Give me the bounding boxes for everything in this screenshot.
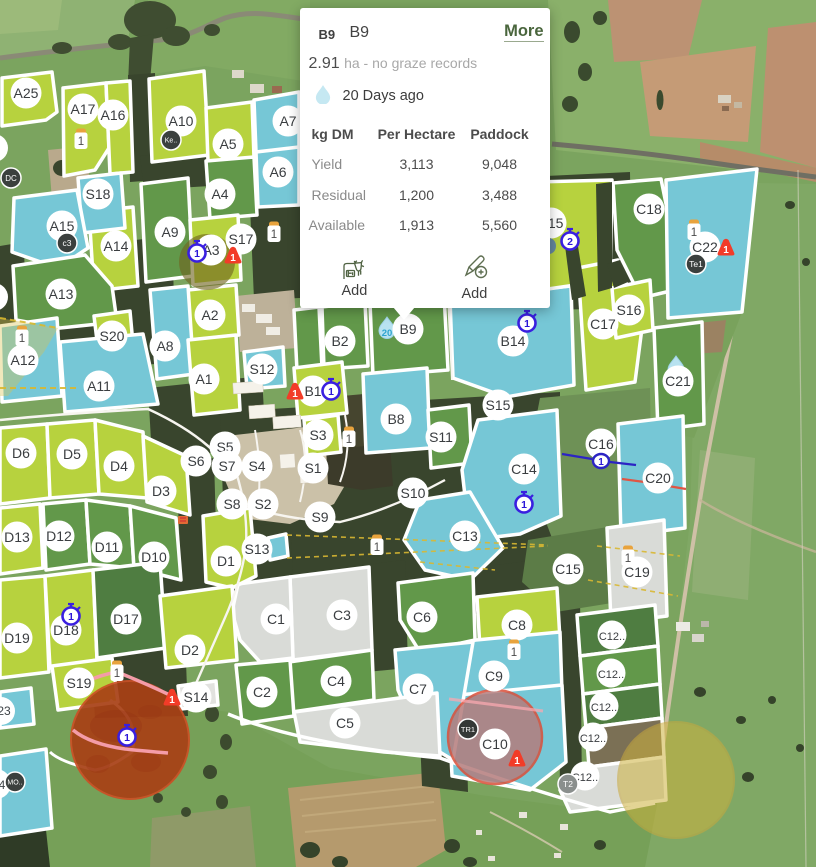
svg-text:A15: A15 [50,218,75,234]
svg-text:S12: S12 [250,361,275,377]
svg-text:1: 1 [723,245,729,256]
svg-text:T2: T2 [563,779,573,789]
svg-text:A13: A13 [49,286,74,302]
svg-text:D17: D17 [113,611,139,627]
svg-text:S20: S20 [100,328,125,344]
svg-text:Ke..: Ke.. [165,138,178,145]
svg-text:B1: B1 [304,383,321,399]
svg-text:C5: C5 [336,715,354,731]
svg-text:D11: D11 [95,539,120,555]
svg-text:S15: S15 [486,397,511,413]
svg-text:A25: A25 [14,85,39,101]
svg-text:1: 1 [524,318,530,330]
svg-text:1: 1 [230,253,236,264]
svg-text:S9: S9 [311,509,328,525]
svg-text:S1: S1 [304,460,321,476]
svg-text:S4: S4 [248,458,265,474]
svg-text:D12: D12 [46,528,72,544]
svg-text:C21: C21 [665,373,691,389]
svg-text:1: 1 [68,611,74,623]
svg-text:C4: C4 [327,673,345,689]
svg-text:C12..: C12.. [591,702,617,714]
svg-text:1: 1 [374,542,380,554]
svg-text:A8: A8 [156,338,173,354]
svg-text:1: 1 [346,434,352,446]
svg-text:A16: A16 [101,107,126,123]
svg-text:C9: C9 [485,668,503,684]
svg-text:S19: S19 [67,675,92,691]
svg-text:C12..: C12.. [598,669,624,681]
svg-text:A6: A6 [269,164,286,180]
svg-text:S14: S14 [184,689,209,705]
svg-text:D6: D6 [12,445,30,461]
svg-text:1: 1 [292,389,298,400]
svg-text:20: 20 [382,328,393,339]
svg-text:Te1: Te1 [689,259,703,269]
svg-text:S3: S3 [309,427,326,443]
svg-text:1: 1 [514,756,520,767]
svg-text:1: 1 [169,695,175,706]
svg-text:1: 1 [691,227,697,239]
svg-text:D3: D3 [152,483,170,499]
svg-text:1: 1 [19,333,25,345]
svg-text:S6: S6 [187,453,204,469]
svg-text:2: 2 [567,236,573,248]
svg-text:D1: D1 [217,553,235,569]
svg-text:B14: B14 [501,333,526,349]
svg-text:c3: c3 [63,238,72,248]
svg-text:C6: C6 [413,609,431,625]
svg-text:C14: C14 [511,461,537,477]
svg-text:C8: C8 [508,617,526,633]
svg-text:S18: S18 [86,186,111,202]
svg-text:B8: B8 [387,411,404,427]
svg-text:S2: S2 [254,496,271,512]
svg-text:C1: C1 [267,611,285,627]
svg-text:B9: B9 [399,321,416,337]
svg-text:C17: C17 [590,316,616,332]
svg-text:S7: S7 [218,458,235,474]
svg-text:1: 1 [271,229,277,241]
svg-text:1: 1 [78,136,84,148]
svg-text:A2: A2 [201,307,218,323]
svg-text:S16: S16 [617,302,642,318]
svg-text:A7: A7 [279,113,296,129]
svg-text:A1: A1 [195,371,212,387]
svg-text:1: 1 [598,457,604,468]
svg-text:1: 1 [194,248,200,260]
svg-text:D19: D19 [4,630,30,646]
svg-text:C2: C2 [253,684,271,700]
svg-text:A10: A10 [169,113,194,129]
svg-text:1: 1 [625,553,631,565]
svg-text:C7: C7 [409,681,427,697]
svg-text:C18: C18 [636,201,662,217]
svg-text:1: 1 [124,732,130,744]
svg-text:C20: C20 [645,470,671,486]
svg-text:C10: C10 [482,736,508,752]
svg-text:A9: A9 [161,224,178,240]
svg-text:C22: C22 [692,239,718,255]
svg-text:TR1: TR1 [461,725,475,734]
svg-text:DC: DC [5,174,17,183]
svg-text:D5: D5 [63,446,81,462]
svg-text:C19: C19 [624,564,650,580]
svg-text:C15: C15 [555,561,581,577]
svg-text:A5: A5 [219,136,236,152]
svg-text:S17: S17 [229,231,254,247]
svg-text:D10: D10 [141,549,167,565]
svg-text:1: 1 [114,668,120,680]
svg-text:C12..: C12.. [599,631,625,643]
svg-text:1: 1 [328,386,334,398]
svg-text:A17: A17 [71,101,96,117]
svg-text:A11: A11 [87,378,111,394]
svg-text:C16: C16 [588,436,614,452]
svg-text:1: 1 [511,647,517,659]
svg-text:D4: D4 [110,458,128,474]
svg-text:23: 23 [0,704,11,718]
svg-text:C12..: C12.. [580,733,606,745]
svg-text:S8: S8 [223,496,240,512]
svg-text:1: 1 [521,499,527,511]
svg-text:S10: S10 [401,485,426,501]
svg-text:A4: A4 [211,186,228,202]
svg-text:S13: S13 [245,541,270,557]
svg-text:A14: A14 [104,238,129,254]
svg-text:A12: A12 [11,352,36,368]
svg-text:C13: C13 [452,528,478,544]
svg-text:B2: B2 [331,333,348,349]
svg-text:D13: D13 [4,529,30,545]
svg-text:C3: C3 [333,607,351,623]
svg-text:MO..: MO.. [7,780,22,787]
svg-text:S11: S11 [429,429,453,445]
svg-text:D2: D2 [181,642,199,658]
